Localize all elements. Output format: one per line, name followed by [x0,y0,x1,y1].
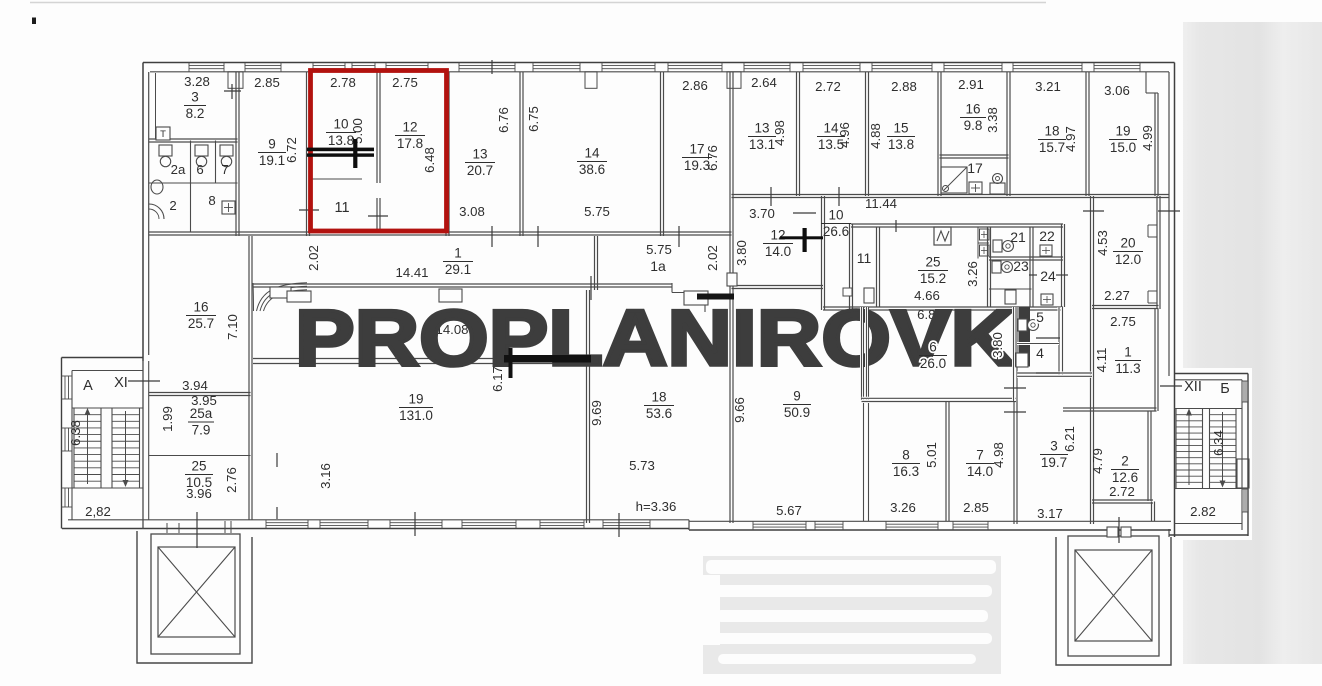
svg-text:2.75: 2.75 [1110,314,1136,329]
svg-text:1: 1 [1124,345,1132,360]
svg-text:18: 18 [651,390,666,405]
svg-text:14: 14 [584,146,600,161]
svg-text:2.72: 2.72 [1109,484,1135,499]
svg-text:13: 13 [472,147,487,162]
svg-text:10: 10 [333,117,348,132]
svg-text:6.21: 6.21 [1062,426,1077,452]
svg-text:3.28: 3.28 [184,74,210,89]
svg-text:38.6: 38.6 [579,162,605,177]
svg-text:2.02: 2.02 [705,245,720,271]
svg-text:18: 18 [1044,124,1059,139]
svg-text:15: 15 [893,121,908,136]
svg-text:XII: XII [1184,379,1202,395]
svg-text:2.78: 2.78 [330,75,356,90]
svg-text:4.66: 4.66 [914,288,940,303]
svg-text:25a: 25a [190,406,213,421]
svg-text:2.88: 2.88 [891,79,917,94]
svg-text:6.72: 6.72 [284,137,299,163]
svg-text:53.6: 53.6 [646,406,672,421]
svg-text:6: 6 [196,162,203,177]
svg-text:3.80: 3.80 [734,240,749,266]
svg-text:7: 7 [976,448,984,463]
svg-text:12.6: 12.6 [1112,470,1138,485]
svg-text:6.34: 6.34 [1211,430,1226,456]
svg-text:17.8: 17.8 [397,136,423,151]
svg-text:5.75: 5.75 [646,242,672,257]
svg-text:11: 11 [334,200,349,216]
svg-text:5.01: 5.01 [924,442,939,468]
svg-text:131.0: 131.0 [399,408,433,423]
svg-text:24: 24 [1040,268,1056,284]
svg-text:1a: 1a [650,258,666,274]
svg-text:T: T [160,129,166,140]
svg-text:16: 16 [965,102,980,117]
svg-text:20.7: 20.7 [467,163,493,178]
svg-text:17: 17 [967,160,983,176]
svg-text:8.2: 8.2 [186,106,205,121]
svg-text:8: 8 [208,193,215,208]
svg-text:7.9: 7.9 [192,423,211,438]
svg-text:3.38: 3.38 [985,107,1000,133]
svg-text:PROPLANIROVK: PROPLANIROVK [295,293,1015,382]
svg-text:20: 20 [1120,236,1135,251]
svg-text:5.73: 5.73 [629,458,655,473]
svg-text:2.02: 2.02 [306,245,321,271]
svg-text:11: 11 [857,250,872,266]
svg-text:25.7: 25.7 [188,316,214,331]
svg-text:19.7: 19.7 [1041,455,1067,470]
svg-text:2a: 2a [171,162,186,177]
svg-text:15.7: 15.7 [1039,140,1065,155]
svg-text:4.11: 4.11 [1094,348,1109,373]
svg-text:2.72: 2.72 [815,79,841,94]
svg-text:2.85: 2.85 [963,500,989,515]
svg-text:2.75: 2.75 [392,75,418,90]
svg-text:6.76: 6.76 [705,145,720,171]
svg-text:6.38: 6.38 [68,420,83,446]
svg-text:14.0: 14.0 [967,464,993,479]
svg-text:2.82: 2.82 [1190,504,1216,519]
svg-text:2.91: 2.91 [958,77,984,92]
svg-text:10: 10 [828,208,843,223]
svg-text:23: 23 [1013,258,1029,274]
svg-text:25: 25 [191,459,206,474]
svg-text:2.27: 2.27 [1104,288,1130,303]
svg-text:12: 12 [402,120,417,135]
svg-text:17: 17 [689,142,704,157]
svg-text:6: 6 [929,340,937,355]
svg-text:3.26: 3.26 [890,500,916,515]
svg-text:4.88: 4.88 [868,123,883,149]
svg-text:9: 9 [268,137,276,152]
svg-text:8: 8 [902,448,910,463]
svg-text:16.3: 16.3 [893,464,919,479]
svg-text:3: 3 [191,90,199,105]
svg-text:4.98: 4.98 [991,442,1006,468]
svg-text:1.99: 1.99 [160,406,175,432]
svg-text:22: 22 [1039,228,1055,244]
svg-text:5.67: 5.67 [776,503,802,518]
svg-text:9.8: 9.8 [964,118,983,133]
svg-text:29.1: 29.1 [445,262,471,277]
svg-text:11.3: 11.3 [1115,361,1140,376]
svg-text:19: 19 [1115,124,1130,139]
svg-text:2.64: 2.64 [751,75,777,90]
svg-text:7.10: 7.10 [225,314,240,340]
svg-text:14.0: 14.0 [765,244,791,259]
svg-text:13: 13 [754,121,769,136]
svg-text:12: 12 [770,228,785,243]
svg-text:25: 25 [925,255,940,270]
svg-text:13.8: 13.8 [888,137,914,152]
svg-text:4.79: 4.79 [1090,448,1105,474]
svg-text:3.26: 3.26 [965,261,980,287]
svg-text:3.96: 3.96 [186,486,212,501]
svg-text:1: 1 [454,246,462,261]
svg-text:16: 16 [193,300,208,315]
svg-text:3.80: 3.80 [990,332,1005,358]
svg-text:3: 3 [1050,439,1058,454]
svg-text:4.96: 4.96 [837,122,852,148]
svg-text:4.98: 4.98 [772,120,787,146]
svg-text:2: 2 [169,198,176,213]
svg-text:9: 9 [793,389,801,404]
svg-text:2: 2 [1121,454,1129,469]
svg-text:14.41: 14.41 [395,265,428,280]
svg-text:5.00: 5.00 [350,118,365,144]
svg-text:6.76: 6.76 [496,107,511,133]
svg-text:21: 21 [1010,229,1026,245]
svg-text:26.6: 26.6 [823,224,849,239]
svg-text:2.86: 2.86 [682,78,708,93]
svg-text:12.0: 12.0 [1115,252,1141,267]
svg-text:2.76: 2.76 [224,467,239,493]
svg-text:26.0: 26.0 [920,356,946,371]
svg-text:2,82: 2,82 [85,504,111,519]
svg-text:Б: Б [1220,381,1230,397]
svg-text:5: 5 [1036,309,1044,325]
svg-text:3.70: 3.70 [749,206,775,221]
svg-text:3.17: 3.17 [1037,506,1063,521]
svg-text:XI: XI [114,375,128,391]
svg-text:6.48: 6.48 [422,147,437,173]
svg-text:3.16: 3.16 [318,463,333,489]
svg-text:9.69: 9.69 [589,400,604,426]
svg-text:3.94: 3.94 [182,378,208,393]
svg-text:15.0: 15.0 [1110,140,1136,155]
svg-text:4.53: 4.53 [1095,230,1110,256]
svg-text:3.08: 3.08 [459,204,485,219]
svg-text:9.66: 9.66 [732,397,747,423]
svg-text:4: 4 [1036,345,1044,361]
svg-text:50.9: 50.9 [784,405,810,420]
svg-text:11.44: 11.44 [865,196,897,211]
svg-text:2.85: 2.85 [254,75,280,90]
svg-text:7: 7 [221,162,228,177]
svg-text:h=3.36: h=3.36 [636,499,677,514]
svg-text:3.21: 3.21 [1035,79,1061,94]
svg-text:6.17: 6.17 [490,366,505,392]
svg-text:А: А [83,378,93,394]
svg-text:4.99: 4.99 [1140,125,1155,151]
svg-text:4.97: 4.97 [1063,126,1078,152]
svg-text:5.75: 5.75 [584,204,610,219]
svg-text:19: 19 [408,392,423,407]
svg-text:6.75: 6.75 [526,106,541,132]
svg-text:19.1: 19.1 [259,153,285,168]
svg-text:3.06: 3.06 [1104,83,1130,98]
svg-text:15.2: 15.2 [920,271,946,286]
